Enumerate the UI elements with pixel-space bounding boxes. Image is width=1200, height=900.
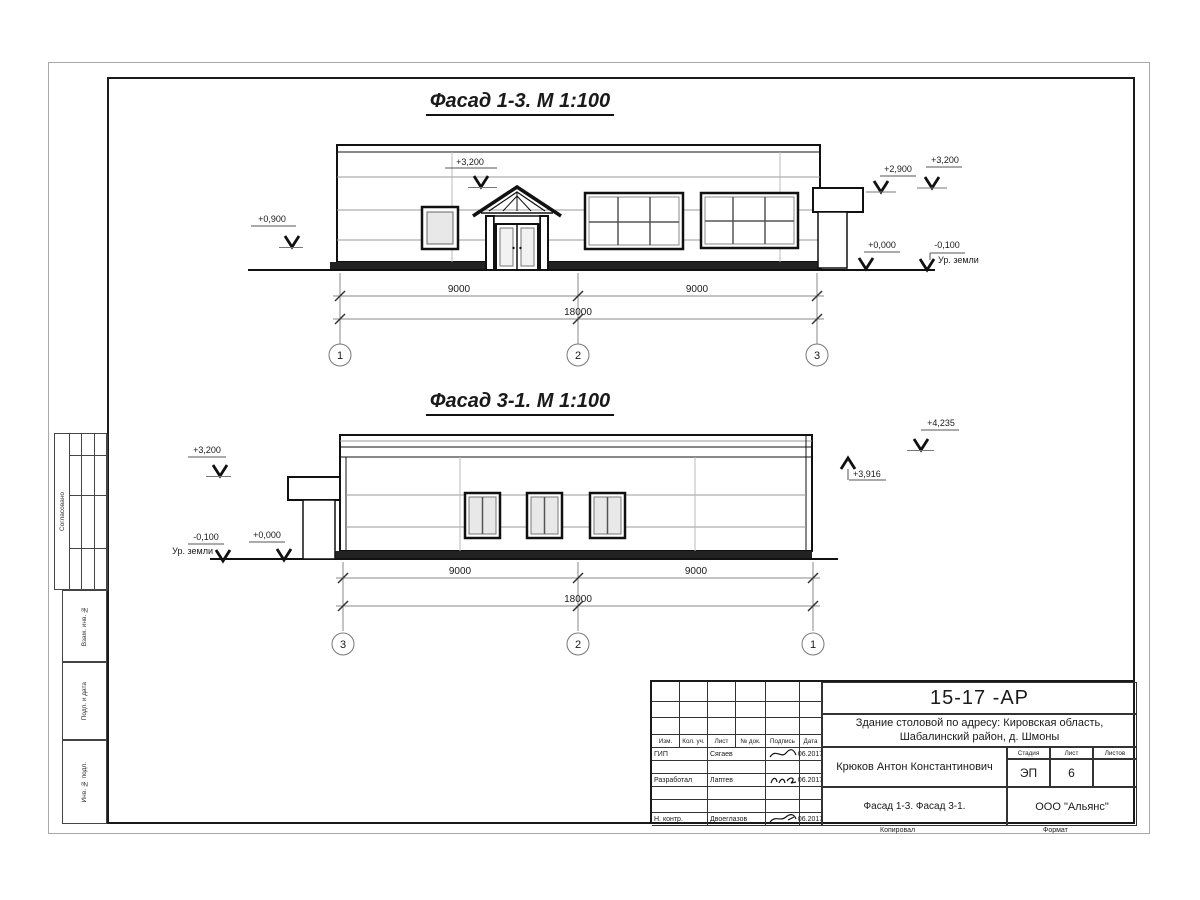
signature-row xyxy=(652,761,822,774)
dim-9000-right: 9000 xyxy=(686,284,709,295)
elev-mark-zero: +0,000 xyxy=(859,240,900,269)
elev-mark-top: +4,235 xyxy=(907,418,959,451)
drawing-sheet: Согласовано Взам. инв. № Подп. и дата Ин… xyxy=(0,0,1200,900)
elevation-arrow-icon xyxy=(925,177,939,188)
elev-mark-left: +3,200 xyxy=(188,445,231,477)
col-podpis: Подпись xyxy=(766,735,800,748)
signature xyxy=(766,748,800,761)
signature-row xyxy=(652,800,822,813)
sheet-label: Лист xyxy=(1050,747,1093,759)
signature xyxy=(766,774,800,787)
facade1-axes: 1 2 3 xyxy=(329,344,828,366)
svg-text:Ур. земли: Ур. земли xyxy=(938,255,979,265)
inv-orig-label: Инв. № подл. xyxy=(81,762,88,803)
drawing-name: Фасад 1-3. Фасад 3-1. xyxy=(822,787,1007,826)
title-block: Изм. Кол. уч. Лист № док. Подпись Дата Г… xyxy=(650,680,1135,824)
facade2-window-3 xyxy=(590,493,625,538)
porch-post-left xyxy=(486,216,494,270)
stage-label: Стадия xyxy=(1007,747,1050,759)
porch-post-right xyxy=(540,216,548,270)
project-name: Здание столовой по адресу: Кировская обл… xyxy=(822,714,1137,747)
facade1-right-canopy xyxy=(813,188,863,268)
svg-text:+0,000: +0,000 xyxy=(868,240,896,250)
author-name: Крюков Антон Константинович xyxy=(822,747,1007,787)
porch-header xyxy=(494,216,540,224)
facade2-title: Фасад 3-1. М 1:100 xyxy=(350,390,690,413)
sign-date-label: Подп. и дата xyxy=(81,682,88,720)
facade2-window-1 xyxy=(465,493,500,538)
facade2-plinth xyxy=(333,551,812,559)
sheet-value: 6 xyxy=(1050,759,1093,787)
col-doc: № док. xyxy=(736,735,766,748)
canopy-slab xyxy=(813,188,863,212)
elev-mark-left: +0,900 xyxy=(251,214,303,248)
approved-label: Согласовано xyxy=(59,492,66,531)
facade2-left-canopy xyxy=(288,477,340,559)
svg-text:Ур. земли: Ур. земли xyxy=(172,546,213,556)
elevation-arrow-icon xyxy=(213,465,227,476)
svg-text:+3,200: +3,200 xyxy=(193,445,221,455)
change-record-grid xyxy=(652,682,822,735)
elevation-arrow-icon xyxy=(285,236,299,247)
dim-18000: 18000 xyxy=(564,594,592,605)
elev-mark-ground: -0,100 Ур. земли xyxy=(172,532,230,561)
facade2-window-2 xyxy=(527,493,562,538)
signature xyxy=(766,813,800,826)
svg-text:+4,235: +4,235 xyxy=(927,418,955,428)
canopy-slab xyxy=(288,477,340,500)
stage-value: ЭП xyxy=(1007,759,1050,787)
replace-inv-label: Взам. инв. № xyxy=(81,606,88,646)
elevation-arrow-icon xyxy=(859,258,873,269)
approved-grid xyxy=(69,434,108,589)
copied-label: Копировал xyxy=(880,827,915,834)
col-data: Дата xyxy=(800,735,822,748)
change-record-headers: Изм. Кол. уч. Лист № док. Подпись Дата xyxy=(652,735,822,748)
axis-3: 3 xyxy=(814,350,820,362)
svg-text:+2,900: +2,900 xyxy=(884,164,912,174)
dim-9000-right: 9000 xyxy=(685,566,708,577)
elev-mark-roof: +3,916 xyxy=(841,458,886,480)
col-list: Лист xyxy=(708,735,736,748)
axis-2: 2 xyxy=(575,350,581,362)
svg-text:+0,900: +0,900 xyxy=(258,214,286,224)
doc-number: 15-17 -АР xyxy=(822,682,1137,714)
elev-mark-right: +3,200 xyxy=(917,155,962,188)
facade1-small-window xyxy=(422,207,458,249)
sheets-label: Листов xyxy=(1093,747,1137,759)
format-label: Формат xyxy=(1043,827,1068,834)
elevation-arrow-up-icon xyxy=(841,458,855,469)
signature-row: РазработалЛаптев 06.2017 xyxy=(652,774,822,787)
elev-mark-zero: +0,000 xyxy=(249,530,291,560)
svg-text:+3,200: +3,200 xyxy=(456,157,484,167)
svg-text:+3,200: +3,200 xyxy=(931,155,959,165)
signature-row xyxy=(652,787,822,800)
company-name: ООО "Альянс" xyxy=(1007,787,1137,826)
axis-1: 1 xyxy=(810,639,816,651)
svg-text:-0,100: -0,100 xyxy=(193,532,219,542)
canopy-column xyxy=(818,212,847,268)
facade1-title: Фасад 1-3. М 1:100 xyxy=(350,90,690,113)
sign-date-box: Подп. и дата xyxy=(62,662,107,740)
axis-2: 2 xyxy=(575,639,581,651)
facade1-large-window-a xyxy=(585,193,683,249)
axis-1: 1 xyxy=(337,350,343,362)
facade1-drawing: +3,200 +0,900 +2,900 +3,200 +0,000 xyxy=(245,140,990,375)
sheets-value xyxy=(1093,759,1137,787)
svg-text:-0,100: -0,100 xyxy=(934,240,960,250)
dim-9000-left: 9000 xyxy=(448,284,471,295)
facade2-axes: 3 2 1 xyxy=(332,633,824,655)
elev-mark-ground: -0,100 Ур. земли xyxy=(920,240,979,270)
facade2-wall xyxy=(340,435,812,551)
elevation-arrow-icon xyxy=(914,439,928,450)
svg-text:+0,000: +0,000 xyxy=(253,530,281,540)
facade1-plinth xyxy=(330,262,822,269)
elev-mark-canopy: +2,900 xyxy=(866,164,916,192)
signature-row: ГИПСягаев 06.2017 xyxy=(652,748,822,761)
elevation-arrow-icon xyxy=(920,259,934,270)
dim-18000: 18000 xyxy=(564,307,592,318)
col-izm: Изм. xyxy=(652,735,680,748)
approved-label-cell: Согласовано xyxy=(55,434,70,589)
elevation-arrow-icon xyxy=(874,181,888,192)
col-kol-uch: Кол. уч. xyxy=(680,735,708,748)
inv-orig-box: Инв. № подл. xyxy=(62,740,107,824)
axis-3: 3 xyxy=(340,639,346,651)
facade1-large-window-b xyxy=(701,193,798,248)
signature-row: Н. контр.Двоеглазов 06.2017 xyxy=(652,813,822,826)
approved-block: Согласовано xyxy=(54,433,107,590)
facade2-drawing: +3,200 -0,100 Ур. земли +0,000 +3,916 +4… xyxy=(165,413,970,660)
replace-inv-box: Взам. инв. № xyxy=(62,590,107,662)
canopy-column xyxy=(303,500,335,559)
svg-text:+3,916: +3,916 xyxy=(853,469,881,479)
dim-9000-left: 9000 xyxy=(449,566,472,577)
